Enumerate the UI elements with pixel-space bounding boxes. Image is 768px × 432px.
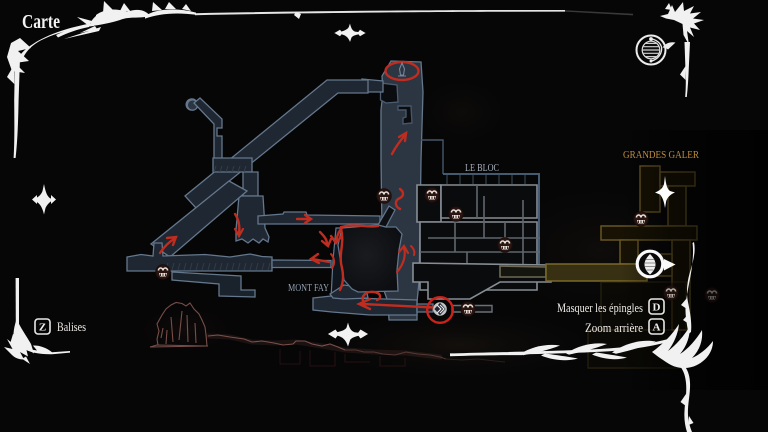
svg-text:MONT FAY: MONT FAY [288, 283, 329, 294]
svg-text:Z: Z [39, 322, 46, 334]
svg-text:GRANDES GALER: GRANDES GALER [623, 150, 699, 161]
svg-text:Masquer les épingles: Masquer les épingles [557, 300, 643, 315]
svg-text:Zoom arrière: Zoom arrière [585, 320, 643, 335]
svg-text:D: D [653, 302, 661, 314]
svg-text:Carte: Carte [22, 12, 60, 33]
svg-text:Balises: Balises [57, 319, 86, 334]
svg-text:LE BLOC: LE BLOC [465, 163, 499, 174]
svg-text:A: A [653, 322, 661, 334]
